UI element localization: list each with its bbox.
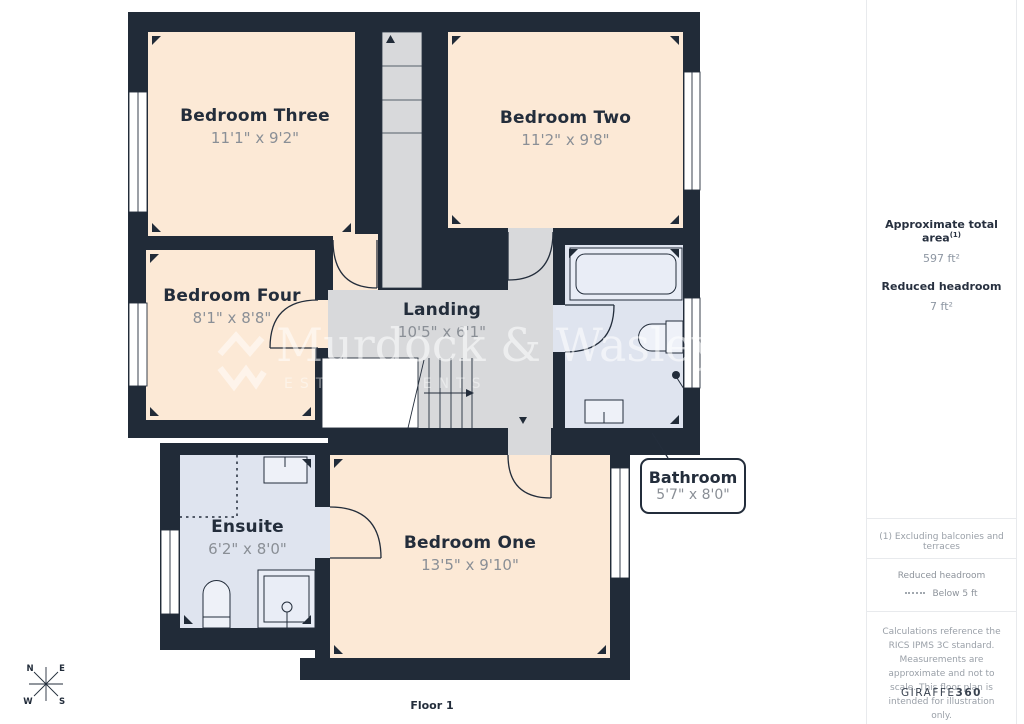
info-sidebar: Approximate total area(1) 597 ft² Reduce… bbox=[866, 0, 1017, 724]
room-bedroom-four bbox=[146, 250, 315, 420]
doorway-bedroom-one bbox=[508, 428, 551, 455]
floor-label: Floor 1 bbox=[332, 699, 532, 712]
legend-row: Below 5 ft bbox=[867, 589, 1016, 599]
brand-suffix: 360 bbox=[956, 687, 982, 699]
legend-title: Reduced headroom bbox=[867, 571, 1016, 581]
compass-n: N bbox=[26, 664, 33, 674]
doorway-ensuite bbox=[315, 507, 330, 558]
footnote: (1) Excluding balconies and terraces bbox=[867, 532, 1016, 552]
reduced-headroom-value: 7 ft² bbox=[867, 300, 1016, 313]
shaft bbox=[382, 32, 422, 288]
room-dims: 5'7" x 8'0" bbox=[656, 487, 729, 503]
room-bedroom-three bbox=[148, 32, 355, 236]
divider bbox=[867, 611, 1016, 612]
approx-area-value: 597 ft² bbox=[867, 252, 1016, 265]
brand-name: GIRAFFE bbox=[901, 687, 956, 699]
compass-s: S bbox=[59, 697, 65, 707]
disclaimer: Calculations reference the RICS IPMS 3C … bbox=[877, 626, 1006, 724]
floorplan-page: N E W S Bedroom Three 11'1" x 9'2" Bedro… bbox=[0, 0, 1024, 724]
reduced-headroom-label: Reduced headroom bbox=[867, 280, 1016, 293]
compass-w: W bbox=[23, 697, 33, 707]
approx-area-footnote-marker: (1) bbox=[950, 231, 961, 239]
doorway-bedroom-three bbox=[333, 234, 378, 290]
divider bbox=[867, 518, 1016, 519]
area-stats: Approximate total area(1) 597 ft² Reduce… bbox=[867, 218, 1016, 313]
stairs bbox=[322, 358, 474, 428]
room-name: Bathroom bbox=[649, 469, 738, 487]
room-bedroom-two bbox=[448, 32, 683, 228]
room-bedroom-one bbox=[330, 455, 610, 658]
doorway-bedroom-four bbox=[315, 300, 328, 348]
approx-area-text: Approximate total area bbox=[885, 218, 998, 245]
legend: Reduced headroom Below 5 ft bbox=[867, 571, 1016, 599]
brand-logo: GIRAFFE360 bbox=[867, 687, 1016, 699]
dotted-line-icon bbox=[905, 592, 925, 594]
bathroom-callout: Bathroom 5'7" x 8'0" bbox=[640, 458, 746, 514]
compass: N E W S bbox=[23, 664, 65, 707]
legend-item: Below 5 ft bbox=[932, 589, 977, 599]
doorway-bedroom-two bbox=[508, 228, 553, 290]
doorway-bathroom bbox=[553, 305, 565, 352]
compass-e: E bbox=[59, 664, 65, 674]
approx-area-label: Approximate total area(1) bbox=[867, 218, 1016, 245]
divider bbox=[867, 558, 1016, 559]
